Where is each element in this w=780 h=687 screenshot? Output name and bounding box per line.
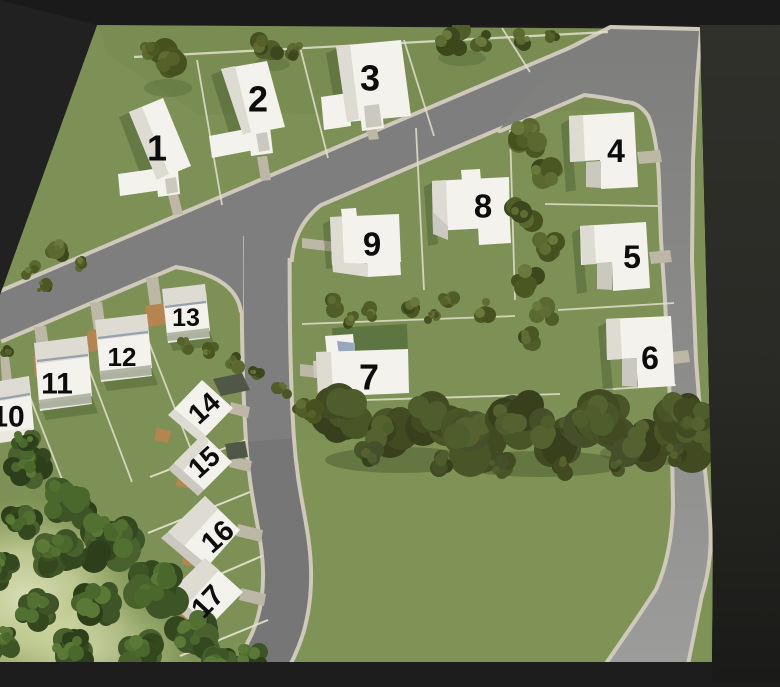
svg-text:12: 12 (108, 342, 137, 372)
svg-text:5: 5 (623, 239, 641, 275)
svg-text:13: 13 (172, 304, 200, 332)
svg-text:6: 6 (641, 340, 659, 376)
svg-text:3: 3 (360, 58, 380, 99)
svg-text:11: 11 (41, 368, 73, 401)
svg-text:10: 10 (0, 401, 25, 434)
svg-text:9: 9 (363, 226, 381, 263)
svg-text:2: 2 (248, 79, 268, 120)
svg-text:1: 1 (147, 128, 167, 169)
svg-text:7: 7 (359, 357, 379, 398)
svg-text:4: 4 (607, 133, 625, 169)
svg-text:8: 8 (474, 188, 492, 225)
